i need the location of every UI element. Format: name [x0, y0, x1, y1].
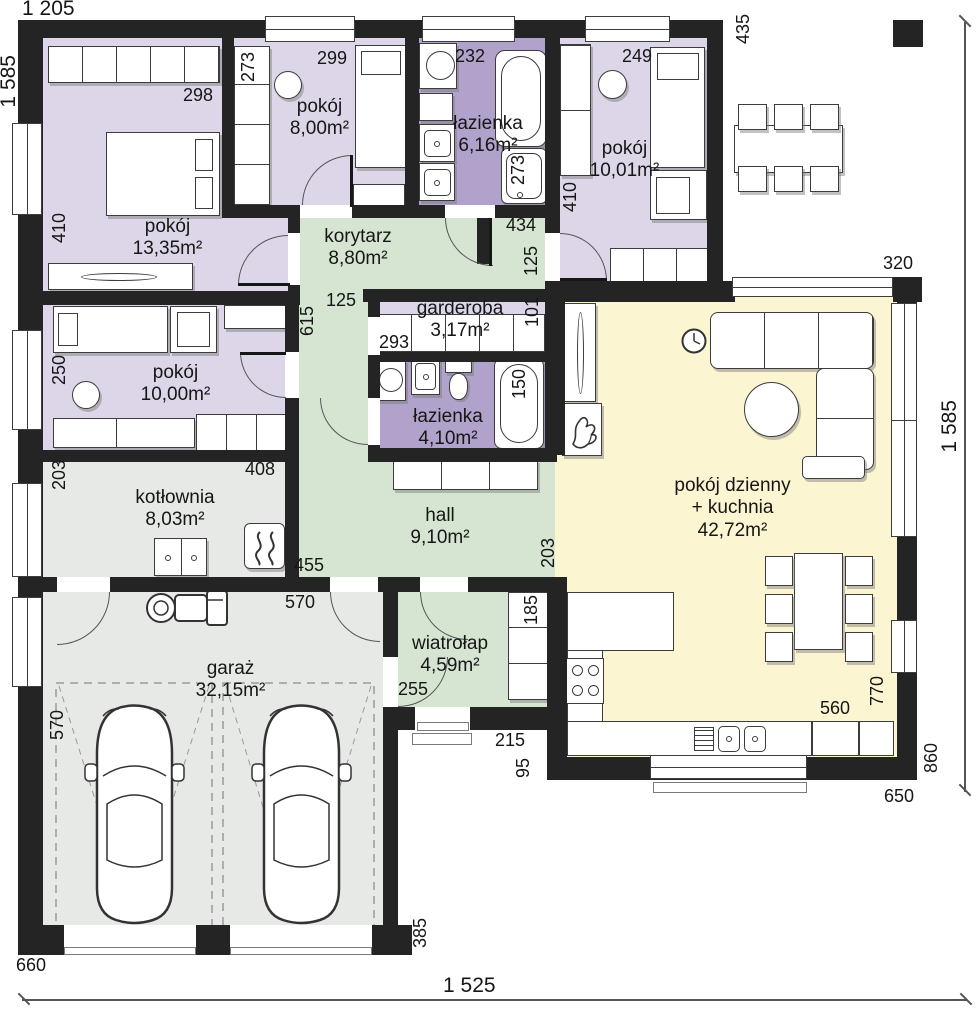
dim-320: 320 — [883, 253, 913, 274]
sink — [419, 163, 455, 201]
door-opening — [445, 205, 495, 218]
wardrobe — [48, 46, 220, 83]
room-name: hall — [385, 505, 495, 527]
entrance-step — [412, 733, 472, 745]
room-label-lazienka-4: łazienka 4,10m² — [398, 406, 498, 451]
wall — [545, 281, 735, 302]
seat — [177, 312, 210, 347]
drain-dot — [434, 180, 440, 186]
floor-plan: 1 205 1 585 1 585 1 525 435 320 298 273 … — [0, 0, 977, 1013]
dim-650: 650 — [884, 786, 914, 807]
room-name: łazienka — [398, 406, 498, 428]
sideboard — [393, 460, 538, 490]
shelf — [224, 305, 286, 329]
door-leaf — [238, 283, 290, 286]
dim-570-garaz-top: 570 — [285, 592, 315, 613]
drain-dot — [752, 736, 758, 742]
room-area: 4,10m² — [398, 428, 498, 450]
room-area: 8,80m² — [308, 248, 408, 270]
room-label-wiatrolap: wiatrołap 4,59m² — [400, 633, 500, 678]
dim-408: 408 — [245, 459, 275, 480]
door-leaf — [489, 218, 492, 266]
dim-299: 299 — [317, 48, 347, 69]
double-sink — [154, 538, 207, 576]
dim-215: 215 — [495, 730, 525, 751]
drain-dot — [726, 736, 732, 742]
room-label-pokoj-10: pokój 10,00m² — [118, 362, 233, 407]
terrace-chair — [738, 104, 767, 130]
toilet-bowl — [449, 373, 468, 400]
burner — [588, 665, 599, 676]
room-label-pokoj-13: pokój 13,35m² — [95, 216, 240, 261]
dim-101: 101 — [522, 297, 543, 327]
washing-machine — [419, 43, 457, 89]
room-area: 8,03m² — [105, 509, 245, 531]
burner — [572, 665, 583, 676]
chair — [845, 556, 873, 586]
sofa-horizontal — [710, 312, 874, 369]
terrace-chair — [738, 166, 767, 192]
bed — [106, 132, 220, 216]
dim-434: 434 — [506, 215, 536, 236]
wall — [383, 580, 398, 955]
window-sill — [653, 782, 807, 793]
door-leaf — [240, 352, 286, 355]
garage-door-panel — [230, 947, 372, 955]
washer-drum — [426, 51, 455, 80]
room-label-kotlownia: kotłownia 8,03m² — [105, 487, 245, 532]
drain-dot — [517, 192, 523, 198]
kitchen-counter-bottom — [567, 721, 894, 756]
terrace-chair — [810, 166, 839, 192]
wall — [383, 707, 567, 730]
room-label-pokoj-1001: pokój 10,01m² — [572, 138, 677, 183]
room-label-dzienny: pokój dzienny + kuchnia 42,72m² — [645, 475, 820, 542]
wall — [375, 352, 557, 362]
wall — [547, 580, 567, 780]
door-opening — [57, 577, 110, 592]
tv-screen — [577, 312, 584, 394]
window — [265, 16, 355, 42]
dining-table — [794, 553, 843, 650]
door-opening — [288, 233, 300, 285]
dim-left-height: 1 585 — [0, 55, 21, 108]
window — [650, 755, 807, 779]
dimension-line-right — [964, 22, 966, 792]
window — [12, 330, 42, 430]
door-opening — [285, 352, 299, 398]
chair — [765, 594, 793, 624]
entrance-threshold — [417, 722, 469, 731]
dim-185: 185 — [521, 595, 542, 625]
room-name: kotłownia — [105, 487, 245, 509]
dim-560: 560 — [820, 698, 850, 719]
chair — [765, 556, 793, 586]
terrace-chair — [774, 166, 803, 192]
burner — [572, 685, 583, 696]
pouf — [72, 381, 100, 409]
room-area: 4,59m² — [400, 655, 500, 677]
sink — [411, 358, 440, 395]
drain-dot — [165, 555, 171, 561]
drain-dot — [423, 374, 429, 380]
car-icon — [250, 692, 353, 930]
dimension-line-bottom — [22, 999, 967, 1001]
room-name: garderoba — [405, 298, 515, 320]
door-leaf — [560, 278, 607, 281]
room-area: 6,16m² — [438, 135, 538, 157]
pouf — [598, 70, 627, 99]
decor-item — [81, 273, 157, 281]
wall — [545, 302, 565, 455]
room-area: 42,72m² — [645, 520, 820, 542]
room-area: 10,00m² — [118, 384, 233, 406]
dresser — [196, 414, 286, 451]
wall — [707, 20, 723, 281]
dim-615: 615 — [297, 306, 318, 336]
counter-divider — [858, 722, 860, 755]
room-name: korytarz — [308, 226, 408, 248]
lawn-mower-icon — [145, 588, 230, 628]
pillow — [361, 51, 401, 75]
pillow — [657, 53, 699, 80]
desk — [53, 418, 195, 448]
dim-125-strip: 125 — [326, 290, 356, 311]
tv-cabinet — [564, 303, 596, 402]
room-label-korytarz: korytarz 8,80m² — [308, 226, 408, 271]
washer-drum — [379, 368, 403, 392]
door-opening — [545, 233, 560, 281]
room-label-hall: hall 9,10m² — [385, 505, 495, 550]
room-name-2: + kuchnia — [645, 497, 820, 519]
room-name: łazienka — [438, 113, 538, 135]
chair — [845, 632, 873, 662]
room-area: 3,17m² — [405, 320, 515, 342]
window — [891, 620, 917, 673]
drain-dot — [191, 555, 197, 561]
kitchen-counter-top — [567, 592, 674, 651]
armchair — [170, 306, 217, 353]
room-area: 10,01m² — [572, 160, 677, 182]
dim-273-prysznic: 273 — [508, 155, 529, 185]
garage-door-panel — [64, 947, 196, 955]
burner — [588, 685, 599, 696]
room-label-garderoba: garderoba 3,17m² — [405, 298, 515, 343]
dim-203-hall: 203 — [538, 538, 559, 568]
dim-410-p1001: 410 — [560, 182, 581, 212]
door-opening — [368, 398, 380, 445]
car-icon — [83, 692, 186, 930]
dim-570-garaz-left: 570 — [47, 710, 68, 740]
sink-drainer — [694, 727, 714, 751]
door-opening — [300, 205, 352, 218]
door-opening — [420, 577, 468, 592]
room-name: pokój — [95, 216, 240, 238]
pillow — [58, 313, 78, 346]
dim-298: 298 — [183, 85, 213, 106]
dim-770: 770 — [867, 676, 888, 706]
dim-435: 435 — [733, 14, 754, 44]
room-name: pokój — [572, 138, 677, 160]
window — [12, 597, 42, 687]
pouf — [274, 71, 302, 99]
dim-410-p1335: 410 — [49, 213, 70, 243]
wall — [405, 20, 419, 218]
heat-waves-icon — [245, 524, 286, 570]
room-name: pokój — [118, 362, 233, 384]
terrace-chair — [774, 104, 803, 130]
wall — [18, 291, 300, 305]
room-name: pokój dzienny — [645, 475, 820, 497]
dim-255: 255 — [398, 679, 428, 700]
room-area: 8,00m² — [262, 118, 377, 140]
window — [585, 16, 670, 42]
dim-250: 250 — [49, 355, 70, 385]
dim-232: 232 — [455, 46, 485, 67]
dim-top-width: 1 205 — [22, 0, 75, 21]
stove — [566, 658, 604, 704]
wall-pillar — [893, 20, 923, 47]
door-opening — [330, 577, 378, 592]
dim-860: 860 — [921, 743, 942, 773]
room-area: 32,15m² — [168, 680, 293, 702]
coffee-table — [744, 382, 799, 437]
dim-125-korytarz: 125 — [521, 246, 542, 276]
window — [422, 16, 515, 42]
room-area: 13,35m² — [95, 238, 240, 260]
dim-249: 249 — [622, 46, 652, 67]
pillow — [195, 139, 213, 171]
pillow — [195, 177, 213, 209]
dim-660: 660 — [16, 955, 46, 976]
boiler — [244, 523, 285, 569]
dim-95: 95 — [513, 758, 534, 778]
clock-icon — [681, 328, 707, 354]
dim-150: 150 — [509, 369, 530, 399]
room-label-lazienka-6: łazienka 6,16m² — [438, 113, 538, 158]
terrace-window — [732, 277, 893, 297]
dim-203-kotlownia: 203 — [49, 460, 70, 490]
chair — [765, 632, 793, 662]
wall — [285, 398, 299, 452]
dim-385: 385 — [410, 918, 431, 948]
flame-icon — [563, 404, 603, 457]
terrace-chair — [810, 104, 839, 130]
dim-455: 455 — [294, 555, 324, 576]
room-name: garaż — [168, 658, 293, 680]
counter-divider — [811, 722, 813, 755]
dim-right-height: 1 585 — [938, 400, 962, 453]
window — [12, 483, 42, 577]
door-leaf — [350, 155, 353, 207]
dim-273-szafa: 273 — [238, 52, 259, 82]
window — [891, 303, 917, 537]
room-name: pokój — [262, 96, 377, 118]
room-name: wiatrołap — [400, 633, 500, 655]
room-label-pokoj-8: pokój 8,00m² — [262, 96, 377, 141]
sofa-vertical — [816, 368, 874, 470]
room-area: 9,10m² — [385, 527, 495, 549]
room-label-garaz: garaż 32,15m² — [168, 658, 293, 703]
bed — [53, 306, 168, 353]
fireplace — [562, 403, 602, 456]
wall — [222, 20, 234, 205]
chair — [845, 594, 873, 624]
door-opening — [383, 657, 398, 707]
dresser — [48, 263, 193, 290]
bedside-table — [353, 184, 405, 206]
dim-bottom-width: 1 525 — [443, 974, 496, 998]
window — [12, 123, 42, 215]
